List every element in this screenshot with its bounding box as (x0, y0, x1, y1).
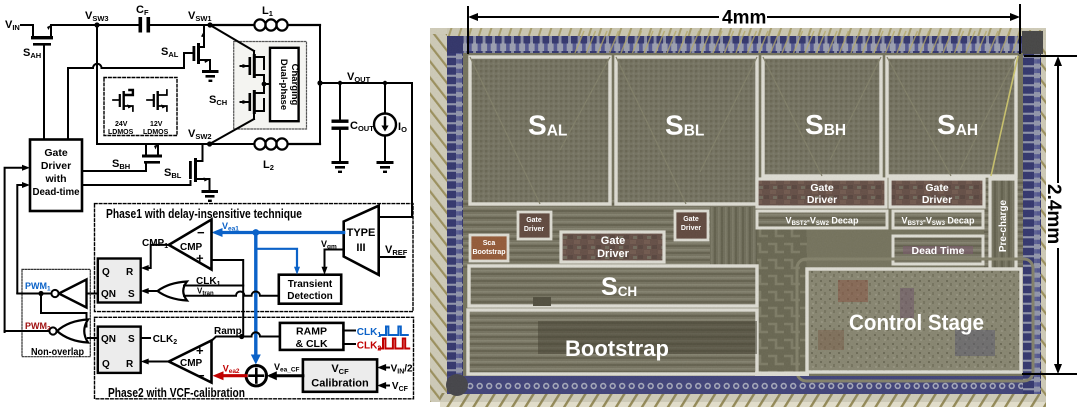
svg-text:Ramp: Ramp (214, 326, 242, 337)
svg-text:Driver: Driver (41, 160, 71, 172)
svg-text:Dead-time: Dead-time (33, 186, 80, 198)
svg-text:Gate: Gate (925, 182, 949, 194)
svg-text:Dead Time: Dead Time (912, 245, 965, 257)
svg-text:Driver: Driver (597, 248, 630, 260)
svg-text:R: R (126, 359, 134, 370)
svg-text:2.4mm: 2.4mm (1043, 184, 1064, 244)
svg-text:III: III (356, 242, 365, 254)
svg-text:R: R (126, 267, 134, 278)
svg-text:Charging: Charging (289, 64, 300, 106)
svg-text:Q: Q (102, 359, 110, 370)
svg-text:Bootstrap: Bootstrap (565, 336, 669, 361)
svg-text:Phase1 with delay-insensitive: Phase1 with delay-insensitive technique (106, 207, 302, 221)
svg-text:+: + (196, 251, 204, 266)
svg-text:Sca: Sca (483, 240, 496, 247)
svg-text:4mm: 4mm (722, 8, 766, 29)
svg-text:Gate: Gate (810, 182, 834, 194)
svg-text:LDMOS: LDMOS (108, 129, 134, 136)
svg-text:Driver: Driver (922, 194, 952, 206)
svg-text:−: − (197, 368, 205, 383)
svg-text:+: + (196, 343, 204, 358)
svg-text:& CLK: & CLK (295, 338, 327, 350)
svg-text:S: S (128, 334, 135, 345)
svg-text:Gate: Gate (44, 147, 68, 159)
svg-text:Q: Q (102, 267, 110, 278)
svg-text:24V: 24V (115, 121, 128, 128)
svg-text:Non-overlap: Non-overlap (31, 346, 84, 358)
svg-text:Pre-charge: Pre-charge (998, 199, 1009, 252)
svg-text:Driver: Driver (681, 225, 702, 232)
svg-text:Driver: Driver (807, 194, 837, 206)
svg-text:Calibration: Calibration (311, 378, 369, 390)
svg-text:−: − (197, 225, 205, 240)
svg-text:QN: QN (101, 334, 116, 345)
svg-text:TYPE: TYPE (347, 227, 376, 239)
svg-text:Detection: Detection (287, 291, 333, 302)
svg-text:Gate: Gate (526, 217, 542, 224)
svg-text:Gate: Gate (601, 235, 625, 247)
svg-text:12V: 12V (150, 121, 163, 128)
svg-text:Gate: Gate (683, 216, 699, 223)
svg-text:Dual-phase: Dual-phase (278, 59, 289, 110)
svg-text:Control Stage: Control Stage (849, 310, 984, 335)
svg-text:LDMOS: LDMOS (143, 129, 169, 136)
svg-text:Bootstrap: Bootstrap (472, 249, 505, 256)
svg-text:with: with (45, 173, 67, 185)
svg-text:QN: QN (101, 289, 116, 300)
svg-text:Phase2 with VCF-calibration: Phase2 with VCF-calibration (108, 386, 245, 400)
svg-text:Transient: Transient (288, 279, 333, 290)
svg-text:Driver: Driver (524, 226, 545, 233)
svg-text:S: S (128, 289, 135, 300)
svg-text:RAMP: RAMP (296, 326, 327, 338)
